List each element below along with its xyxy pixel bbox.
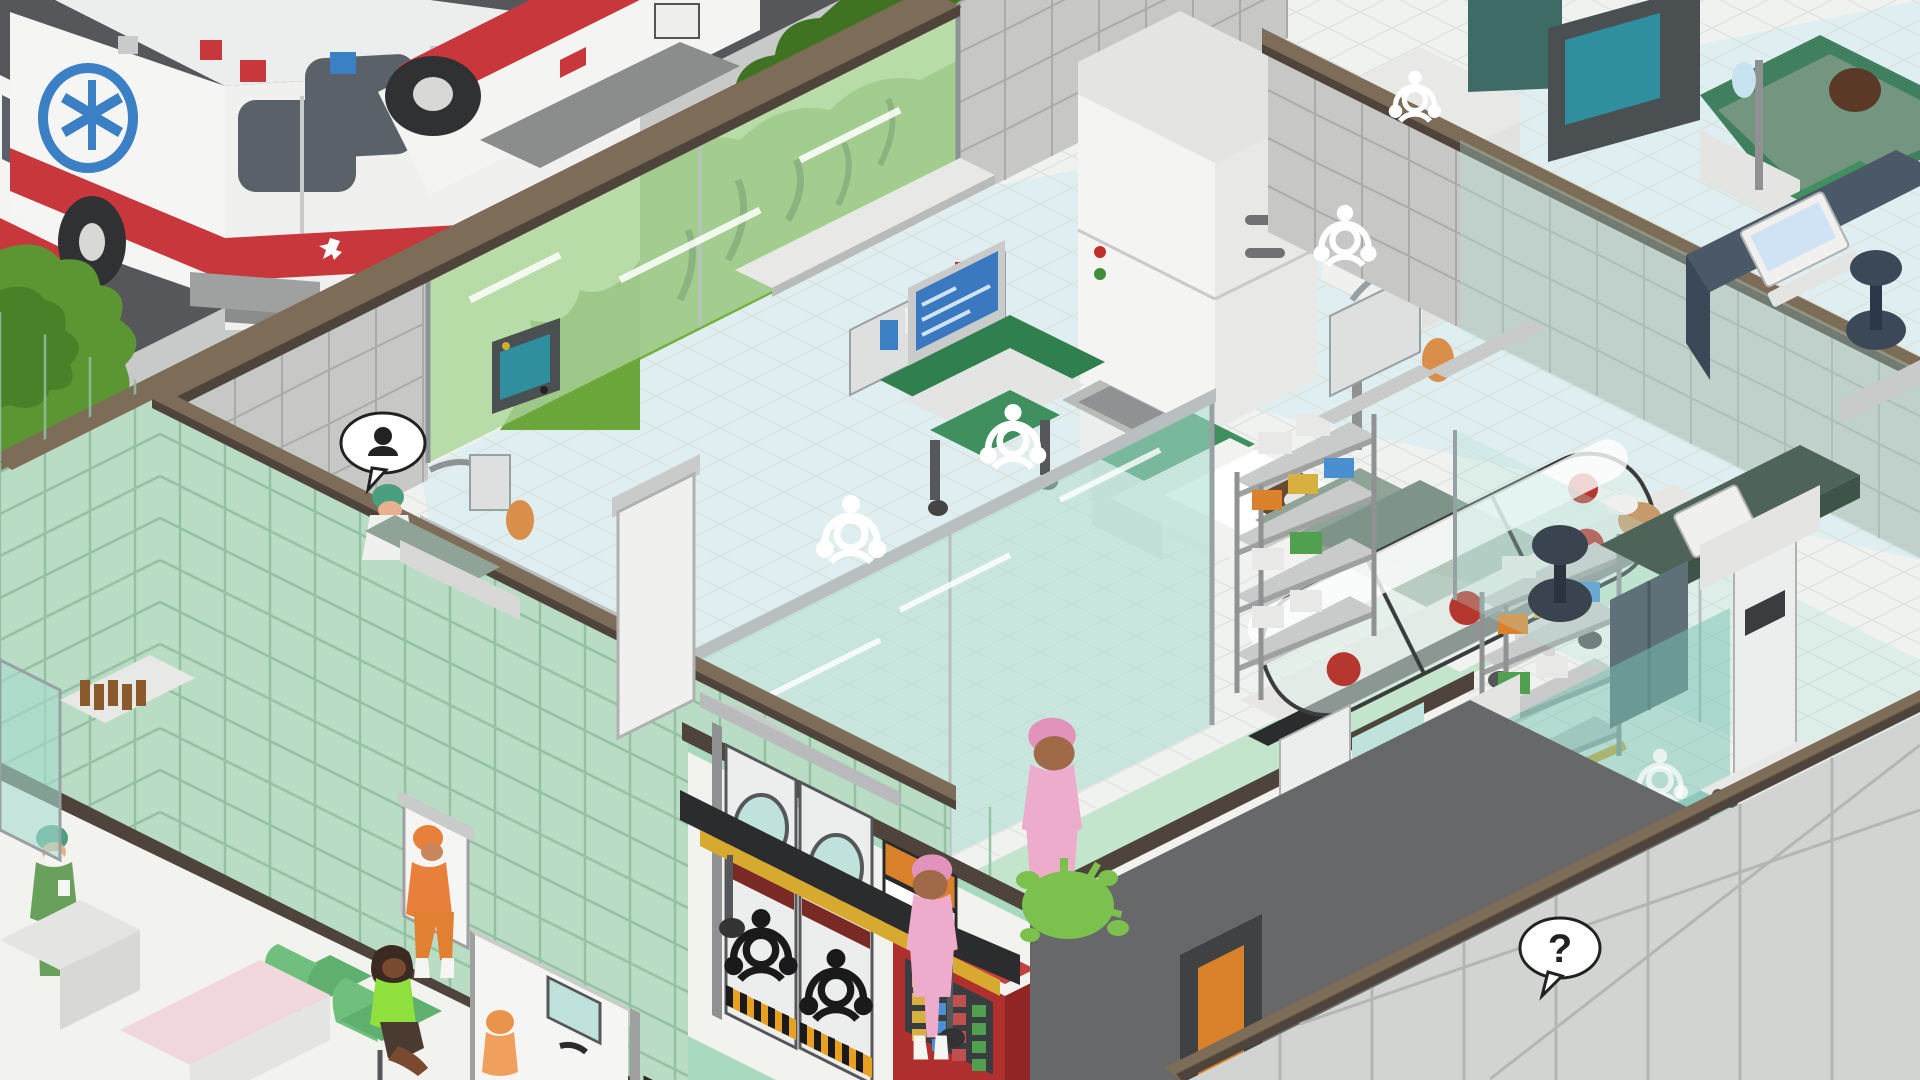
svg-text:?: ? (1548, 927, 1572, 971)
